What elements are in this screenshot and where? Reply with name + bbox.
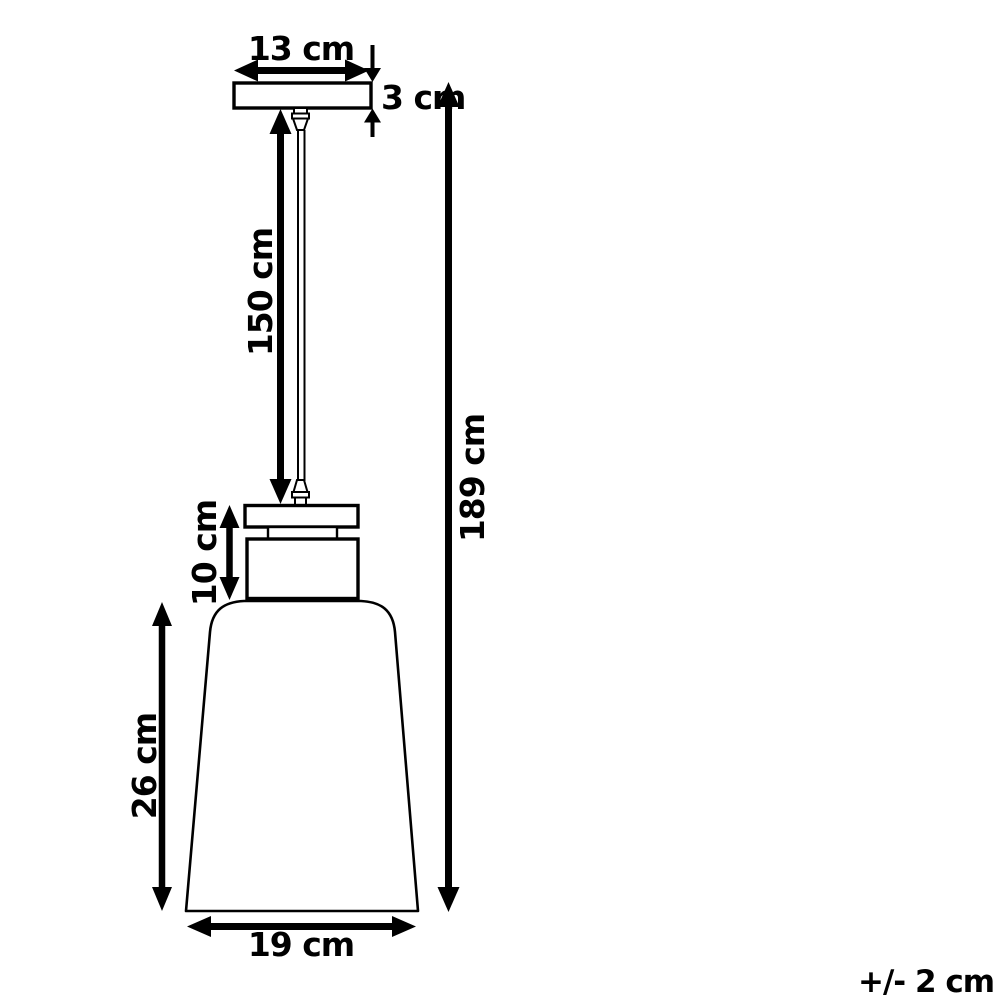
dimension-diagram: 13 cm 3 cm 150 cm 189 cm 10 cm <box>0 0 1000 1000</box>
arrowhead-left-icon <box>187 916 211 937</box>
arrowhead-up-icon <box>152 602 172 626</box>
dim-label-holder-height: 10 cm <box>185 500 224 606</box>
lamp-cap-top <box>245 506 358 528</box>
arrowhead-down-icon <box>152 887 172 911</box>
dim-label-shade-height: 26 cm <box>125 713 164 819</box>
arrowhead-down-icon <box>438 887 460 912</box>
arrowhead-down-icon <box>364 68 381 82</box>
dim-label-cord-length: 150 cm <box>241 228 280 356</box>
suspension-cord <box>298 130 305 481</box>
arrowhead-down-icon <box>270 479 292 504</box>
lamp-cap-neck <box>268 527 337 539</box>
dim-label-shade-width: 19 cm <box>248 925 354 964</box>
tolerance-note: +/- 2 cm <box>858 964 994 1000</box>
arrowhead-up-icon <box>270 109 292 134</box>
dim-label-total-height: 189 cm <box>453 414 492 542</box>
ceiling-canopy <box>234 83 371 108</box>
arrowhead-up-icon <box>364 109 381 123</box>
lamp-shade <box>186 601 418 911</box>
socket-holder <box>247 539 358 599</box>
dim-label-canopy-width: 13 cm <box>248 29 354 68</box>
arrowhead-right-icon <box>392 916 416 937</box>
pendant-lamp-drawing: 13 cm 3 cm 150 cm 189 cm 10 cm <box>0 0 1000 1000</box>
upper-cord-grip <box>292 108 309 130</box>
lower-cord-grip <box>292 480 309 506</box>
